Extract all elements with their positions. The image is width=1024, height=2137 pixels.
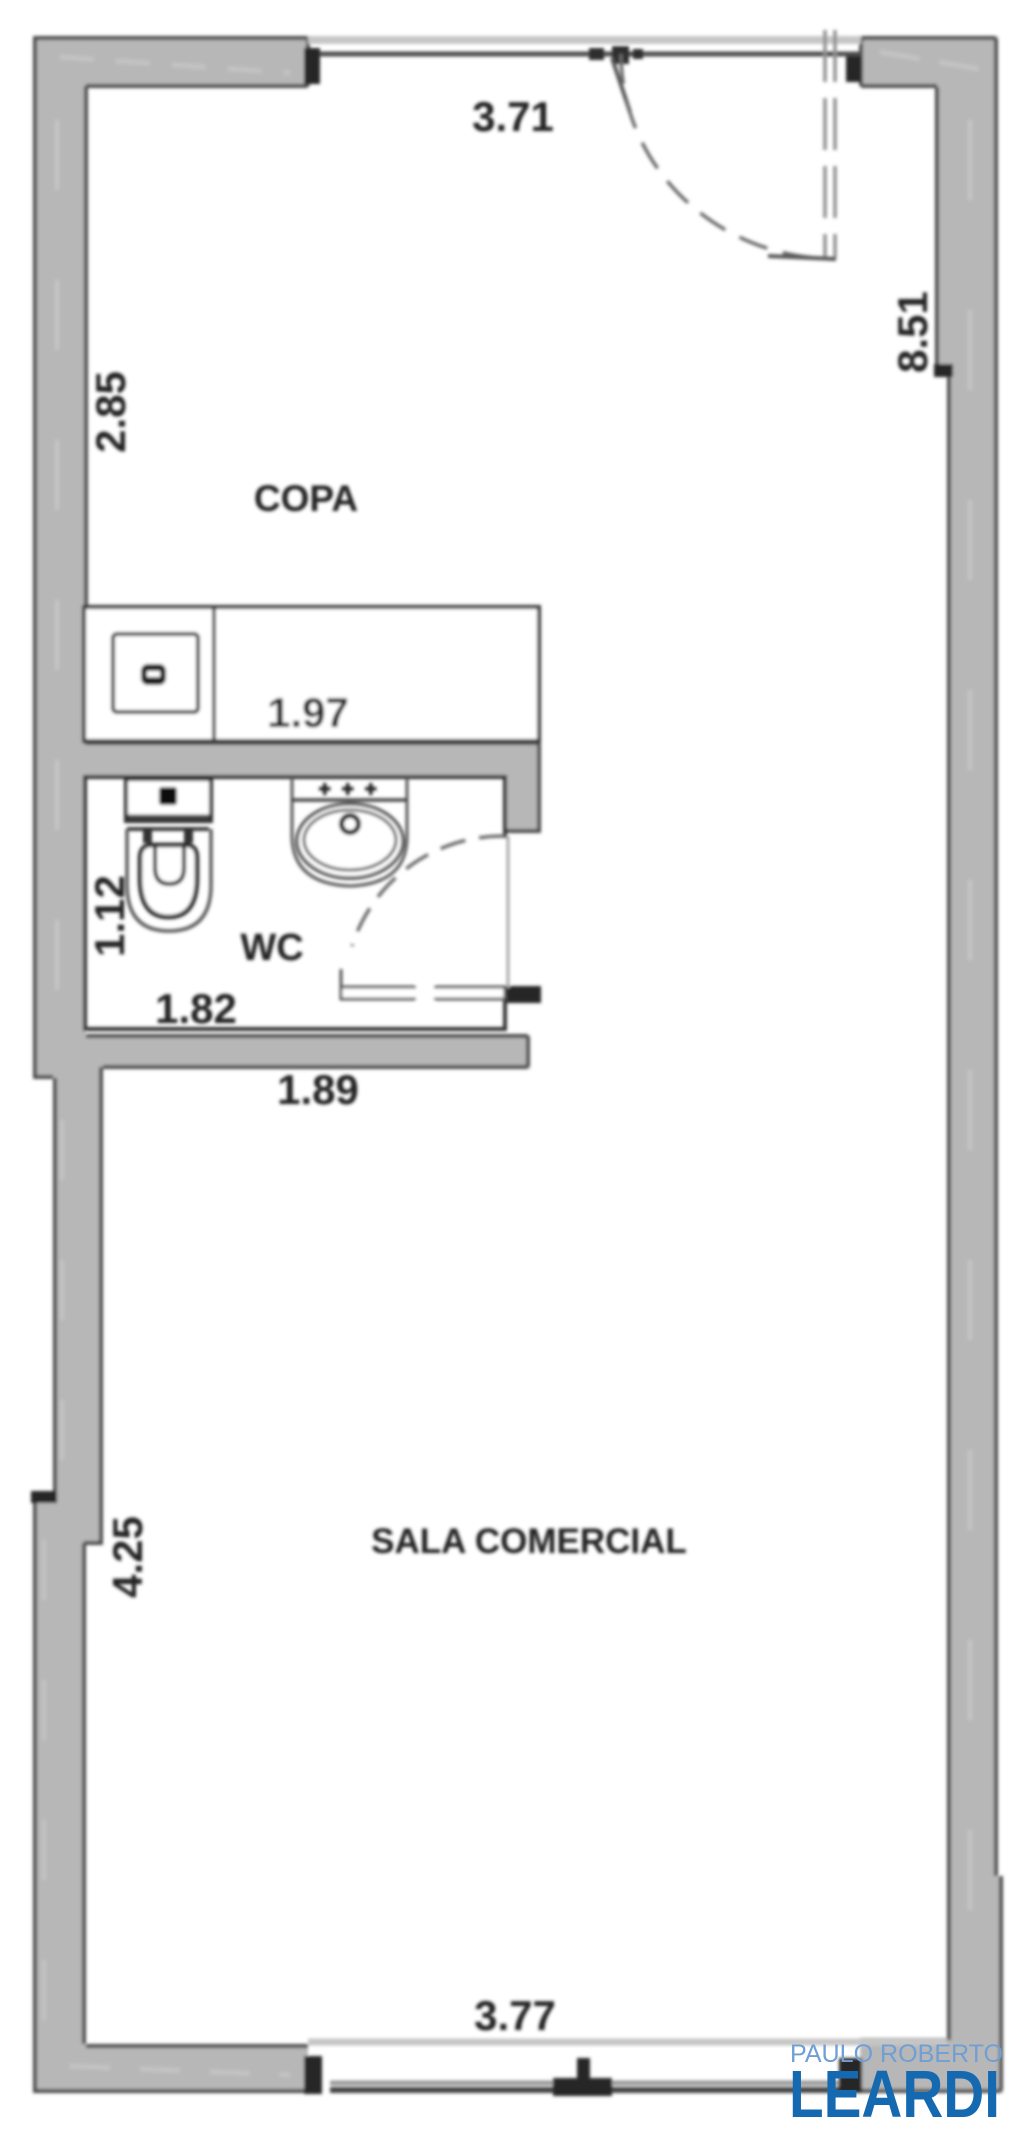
svg-text:WC: WC	[240, 927, 303, 969]
svg-text:COPA: COPA	[254, 478, 358, 519]
svg-text:3.77: 3.77	[474, 1992, 556, 2039]
svg-text:3.71: 3.71	[472, 93, 554, 140]
svg-text:1.97: 1.97	[267, 689, 349, 736]
svg-text:LEARDI: LEARDI	[789, 2057, 1000, 2132]
svg-text:SALA COMERCIAL: SALA COMERCIAL	[371, 1522, 687, 1561]
svg-text:2.85: 2.85	[87, 371, 134, 453]
svg-text:1.89: 1.89	[277, 1066, 359, 1113]
svg-text:1.82: 1.82	[155, 985, 237, 1032]
svg-text:4.25: 4.25	[104, 1516, 151, 1598]
svg-text:1.12: 1.12	[86, 875, 133, 957]
svg-text:8.51: 8.51	[889, 291, 936, 373]
